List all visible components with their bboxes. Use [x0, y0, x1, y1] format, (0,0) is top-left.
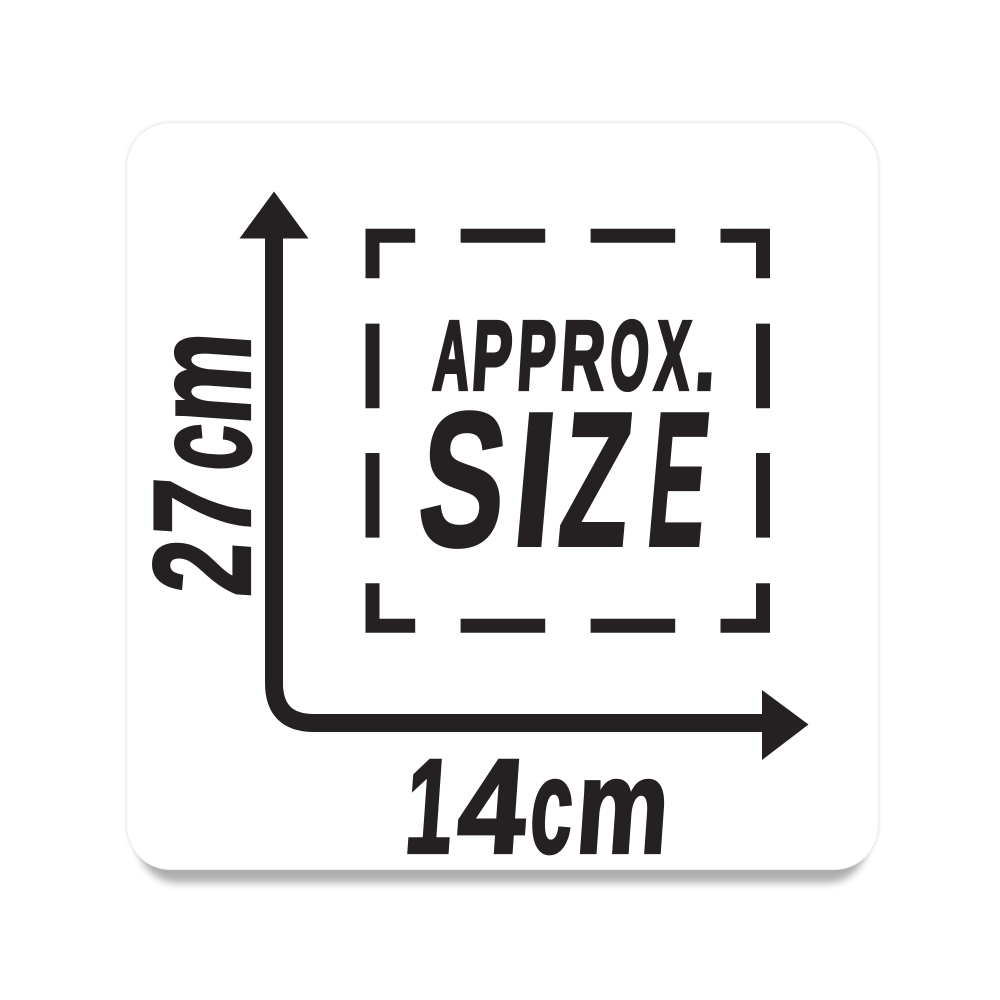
svg-text:7: 7 [127, 475, 280, 542]
svg-text:m: m [572, 733, 674, 882]
svg-text:2: 2 [127, 535, 280, 599]
svg-text:m: m [127, 326, 280, 428]
svg-text:4: 4 [453, 733, 531, 882]
